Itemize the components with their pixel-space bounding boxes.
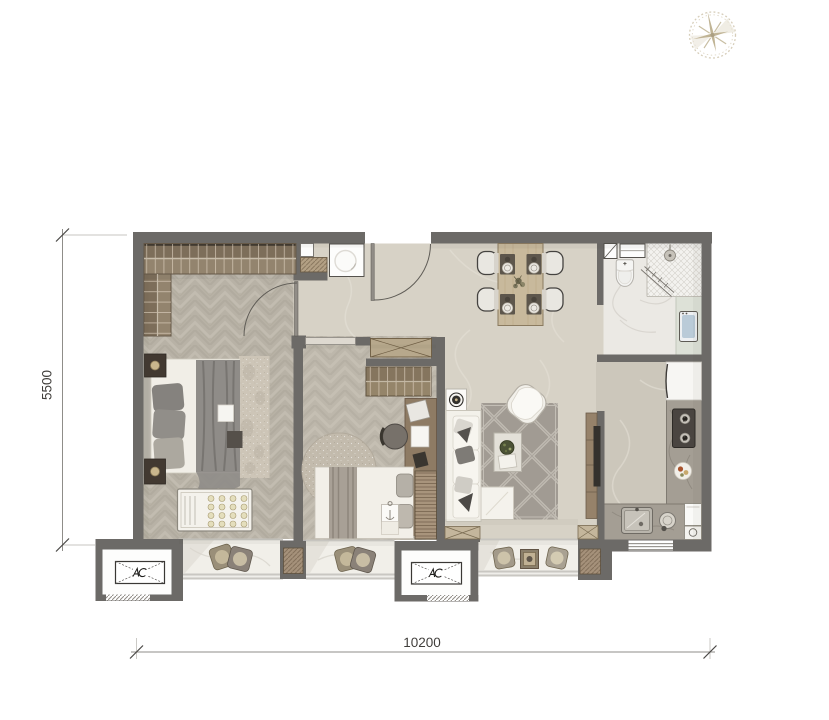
svg-text:10200: 10200	[403, 635, 441, 650]
svg-text:5500: 5500	[40, 370, 55, 400]
